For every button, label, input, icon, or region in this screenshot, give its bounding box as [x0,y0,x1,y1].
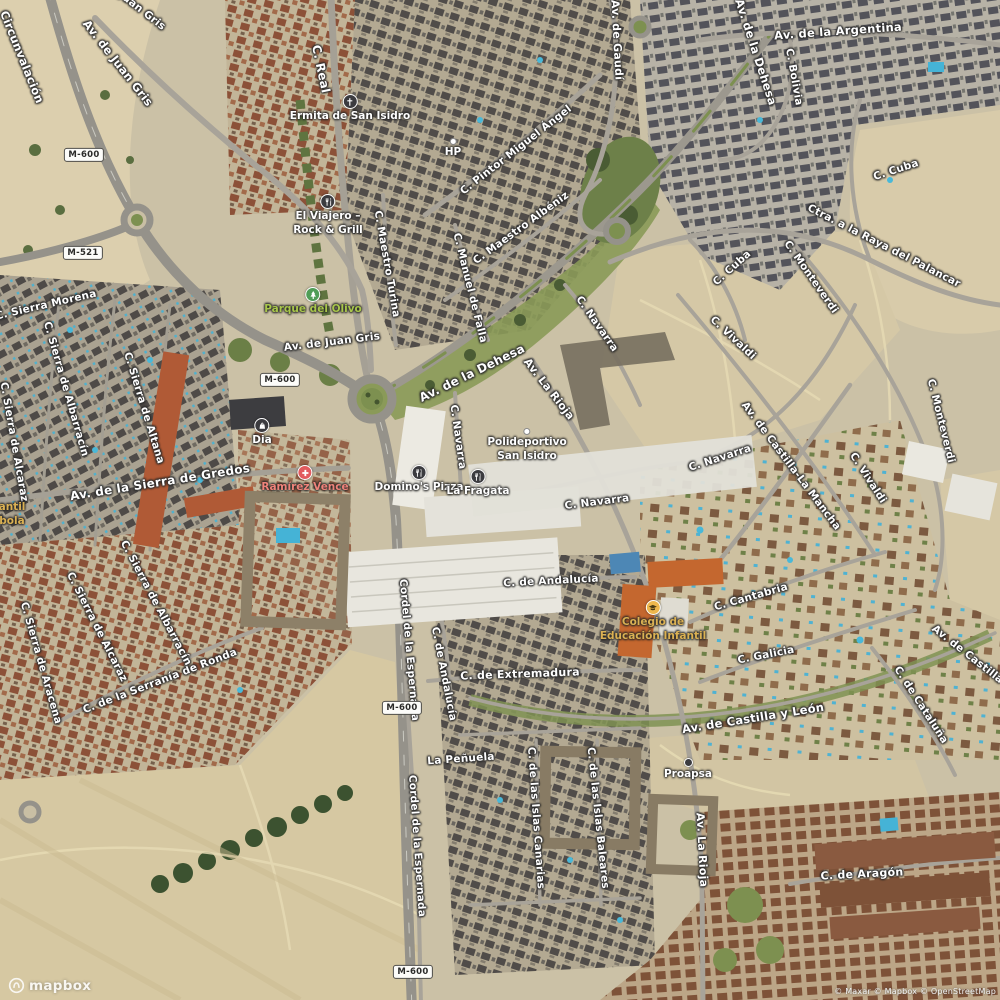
restaurant-icon [320,194,335,209]
road-label: C. Sierra de Alcaraz [0,381,30,503]
road-label: Av. La Rioja [694,812,711,887]
road-label: C. Sierra de Altana [121,351,166,466]
road-label: C. de Andalucía [503,573,599,590]
poi-label-text: Rock & Grill [293,224,363,237]
road-label: C. de las Islas Canarias [525,747,547,890]
dot-dark-icon [684,758,693,767]
road-label: C. Sierra de Aracena [18,601,64,726]
poi-label-text: Dia [252,434,271,447]
poi-label: HP [445,138,461,159]
road-label: C. Sierra Morena [0,288,98,323]
church-icon [342,94,357,109]
school-icon [646,600,661,615]
poi-label-text: La Fragata [447,485,510,498]
road-label: C. Galicia [737,644,796,667]
road-label: C. Vivaldi [708,314,759,362]
road-label: Av. de la Sierra de Gredos [69,461,251,503]
poi-label-text: Educación Infantil [600,630,706,643]
map-attribution[interactable]: © Maxar © Mapbox © OpenStreetMap [834,987,996,996]
road-label: Circunvalación [0,9,47,106]
road-label: C. Pintor Miguel Ángel [458,103,574,197]
poi-label-text: El Viajero – [295,210,360,223]
health-icon [298,465,313,480]
route-shield: M-600 [260,373,300,387]
poi-label: Proapsa [664,758,712,781]
road-label: Av. de la Dehesa [417,341,527,404]
road-label: C. de las Islas Baleares [585,747,612,890]
road-label: C. de Cataluña [892,664,951,746]
road-label: C. Navarra [448,404,469,470]
road-label: C. Navarra [564,492,630,512]
road-label: C. Vivaldi [847,450,889,505]
road-label: C. Cuba [872,157,920,183]
road-label: C. de Aragón [820,865,903,882]
mapbox-logo-icon [8,977,25,994]
road-label: C. Navarra [573,294,620,354]
poi-label: El Viajero –Rock & Grill [293,194,363,236]
road-label: C. Maestro Albéniz [471,189,571,267]
road-label: C. Cantabria [713,581,789,614]
poi-label-text: Polideportivo [487,436,566,449]
poi-label-text: bola [0,515,25,528]
poi-label: Parque del Olivo [264,287,362,316]
poi-label-text: Ermita de San Isidro [290,110,410,123]
park-icon [306,287,321,302]
road-label: C. Sierra de Alcaraz [64,570,130,684]
road-label: Av. de la Argentina [774,20,903,43]
road-label: Av. de Gaudí [608,0,625,81]
route-shield: M-600 [382,701,422,715]
road-label: Cordel de la Espernada [406,774,428,917]
poi-label-text: Parque del Olivo [264,303,362,316]
route-shield: M-521 [63,246,103,260]
road-label: C. de Andalucía [429,626,459,722]
satellite-map[interactable]: CircunvalaciónC. Juan GrisAv. de Juan Gr… [0,0,1000,1000]
road-label: C. Monteverdi [781,238,840,315]
poi-label: Dia [252,418,271,447]
mapbox-logo[interactable]: mapbox [8,977,91,994]
poi-label-text: San Isidro [497,450,556,463]
road-label: C. Maestro Turina [372,210,403,319]
route-shield: M-600 [64,148,104,162]
road-label: C. Sierra de Albarracín [41,320,91,458]
poi-label: antilbola [0,501,25,527]
route-shield: M-600 [393,965,433,979]
road-label: Av. La Rioja [521,356,577,423]
dot-white-icon [449,138,456,145]
road-label: C. Bolivia [783,47,805,106]
road-label: C. Sierra de Albarracín [118,538,194,667]
restaurant-icon [471,469,486,484]
poi-label: Colegio deEducación Infantil [600,600,706,642]
poi-label-text: antil [0,501,25,514]
poi-label: PolideportivoSan Isidro [487,428,566,462]
road-label: Av. de Castilla-La Mancha [739,400,843,533]
road-label: Av. de Juan Gris [283,330,381,354]
poi-label-text: Ramírez Vence [261,481,348,494]
poi-label: Ermita de San Isidro [290,94,410,123]
restaurant-icon [411,465,426,480]
poi-label-text: Colegio de [622,616,684,629]
road-label: C. de Extremadura [460,665,580,682]
poi-label: La Fragata [447,469,510,498]
road-label: Av. de Castilla y León [681,700,825,736]
road-label: C. Juan Gris [104,0,168,33]
poi-label-text: HP [445,146,461,159]
dot-white-icon [524,428,531,435]
map-labels: CircunvalaciónC. Juan GrisAv. de Juan Gr… [0,0,1000,1000]
road-label: Av. de Castilla y León [929,623,1000,714]
poi-label: Ramírez Vence [261,465,348,494]
road-label: Av. de la Dehesa [732,0,780,107]
road-label: C. Monteverdi [925,378,957,464]
road-label: C. Navarra [687,442,753,474]
road-label: Ctra. a la Raya del Palancar [805,202,962,290]
road-label: C. Real [309,44,333,95]
cart-icon [255,418,270,433]
mapbox-logo-text: mapbox [29,978,91,994]
road-label: La Peñuela [427,751,495,768]
poi-label-text: Proapsa [664,768,712,781]
road-label: C. Cuba [711,248,754,288]
road-label: Av. de Juan Gris [80,17,156,109]
